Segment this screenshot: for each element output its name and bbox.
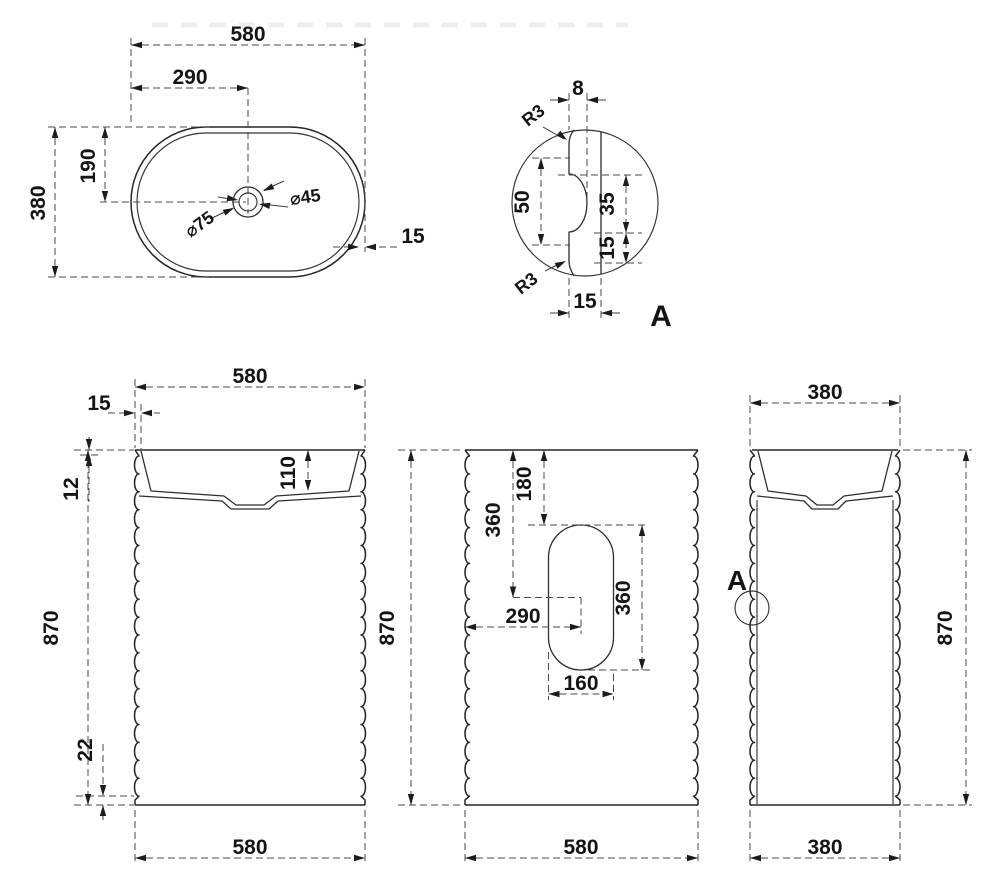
dim-fillet-bottom: R3	[511, 268, 541, 298]
drawing-page: 580 290 190 380 ⌀75 ⌀45 15	[0, 0, 1000, 894]
basin-section	[757, 451, 893, 509]
dim-top-overall-width: 580	[230, 23, 265, 46]
detail-a-marker-label: A	[727, 565, 747, 596]
dim-top-overall-depth: 380	[27, 185, 50, 220]
dim-basin-depth: 110	[277, 456, 300, 490]
dim-rim-height: 12	[60, 477, 83, 500]
back-view: 870 180 360 290 360 160 580	[376, 450, 698, 864]
dim-cutout-top-offset: 180	[513, 466, 536, 501]
dim-front-wall-thickness: 15	[87, 392, 111, 415]
front-view: 580 15 12 110 870 22 580	[40, 365, 366, 864]
dim-side-top-width: 380	[807, 381, 842, 404]
dim-drain-offset-x: 290	[172, 66, 207, 89]
wall-fluted-profile	[569, 130, 587, 276]
fluted-edge-right	[694, 450, 699, 805]
dim-detail-wall-thickness: 15	[573, 290, 597, 313]
dim-front-top-width: 580	[232, 365, 267, 388]
fluted-edge-left	[135, 450, 140, 805]
fluted-edge-left	[750, 450, 755, 805]
fluted-edge-right	[361, 450, 366, 805]
dim-cutout-height: 360	[612, 580, 635, 615]
dim-fillet-top: R3	[518, 100, 548, 130]
side-view: 380 A 870 380	[727, 381, 972, 864]
dim-back-height: 870	[376, 610, 399, 645]
dim-back-bottom-width: 580	[563, 836, 598, 859]
dim-drain-outer-dia: ⌀75	[181, 207, 218, 241]
dim-front-height: 870	[40, 610, 63, 645]
dim-drain-offset-y: 190	[77, 148, 100, 183]
dim-groove-gap: 15	[596, 236, 619, 260]
dim-side-height: 870	[934, 610, 957, 645]
dim-cutout-center-offset: 360	[482, 502, 505, 537]
basin-section	[139, 451, 361, 509]
technical-drawing-canvas: 580 290 190 380 ⌀75 ⌀45 15	[0, 0, 1000, 894]
dim-base-gap: 22	[74, 738, 97, 761]
dim-groove-pitch: 50	[511, 190, 534, 213]
dim-groove-height: 35	[596, 192, 619, 216]
dim-cutout-width: 160	[563, 672, 598, 695]
dim-side-bottom-width: 380	[807, 836, 842, 859]
detail-a-view: 8 R3 R3 50 35 15 15 A	[511, 77, 672, 333]
dim-front-bottom-width: 580	[232, 836, 267, 859]
dim-drain-inner-dia: ⌀45	[288, 185, 321, 209]
detail-a-label: A	[650, 300, 672, 333]
dim-top-wall-thickness: 15	[401, 225, 425, 248]
dim-cutout-center-x: 290	[505, 605, 540, 628]
dim-flute-depth: 8	[572, 77, 584, 100]
fluted-edge-right	[896, 450, 901, 805]
top-view: 580 290 190 380 ⌀75 ⌀45 15	[27, 23, 425, 277]
